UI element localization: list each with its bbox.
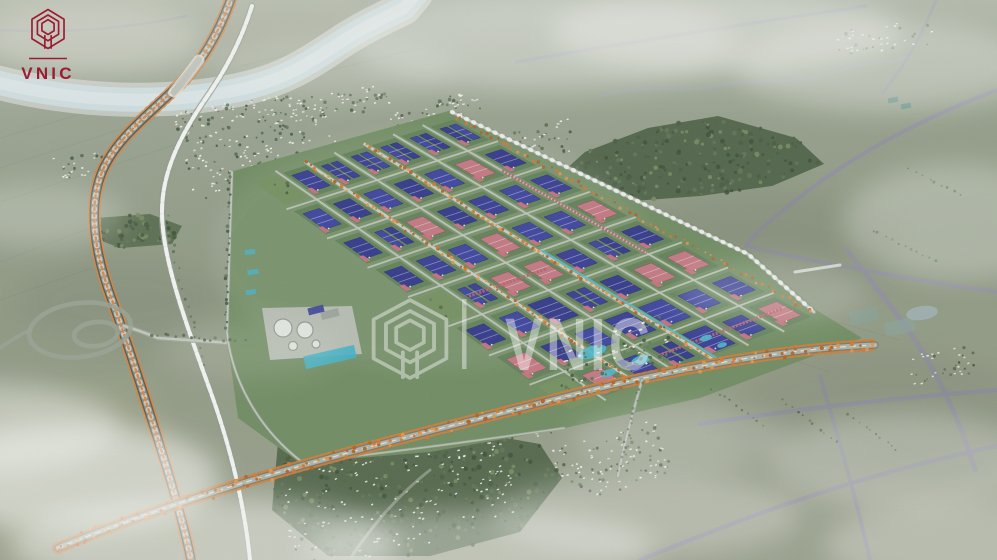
vnic-logo: VNIC (0, 0, 130, 100)
film-grain (0, 0, 997, 560)
vnic-watermark-divider (462, 299, 467, 369)
vnic-watermark: VNIC (355, 290, 715, 390)
vnic-logo-text: VNIC (21, 64, 74, 83)
vnic-watermark-text: VNIC (505, 303, 653, 386)
masterplan-render: VNIC VNIC (0, 0, 997, 560)
masterplan-scene (0, 0, 997, 560)
vnic-watermark-hexagon-icon (374, 300, 447, 378)
vnic-logo-hexagon-icon (32, 10, 64, 49)
